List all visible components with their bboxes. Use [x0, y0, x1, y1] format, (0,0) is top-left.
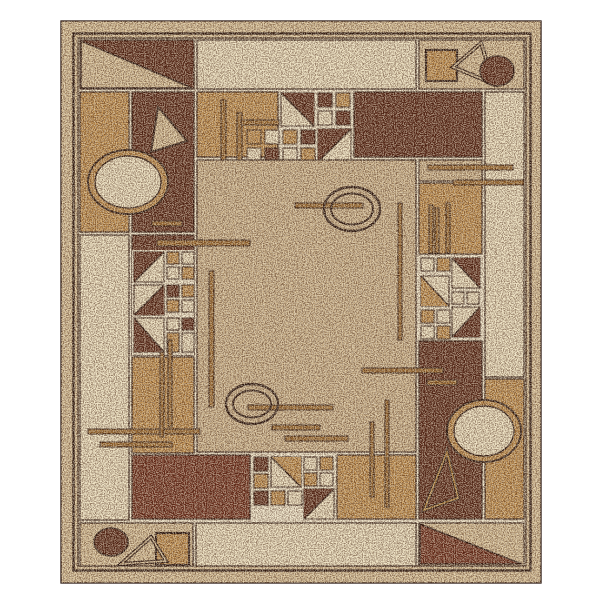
rug-image	[0, 0, 612, 612]
rug	[61, 21, 541, 583]
speckle-texture	[61, 21, 541, 583]
rug-product-photo	[0, 0, 612, 612]
